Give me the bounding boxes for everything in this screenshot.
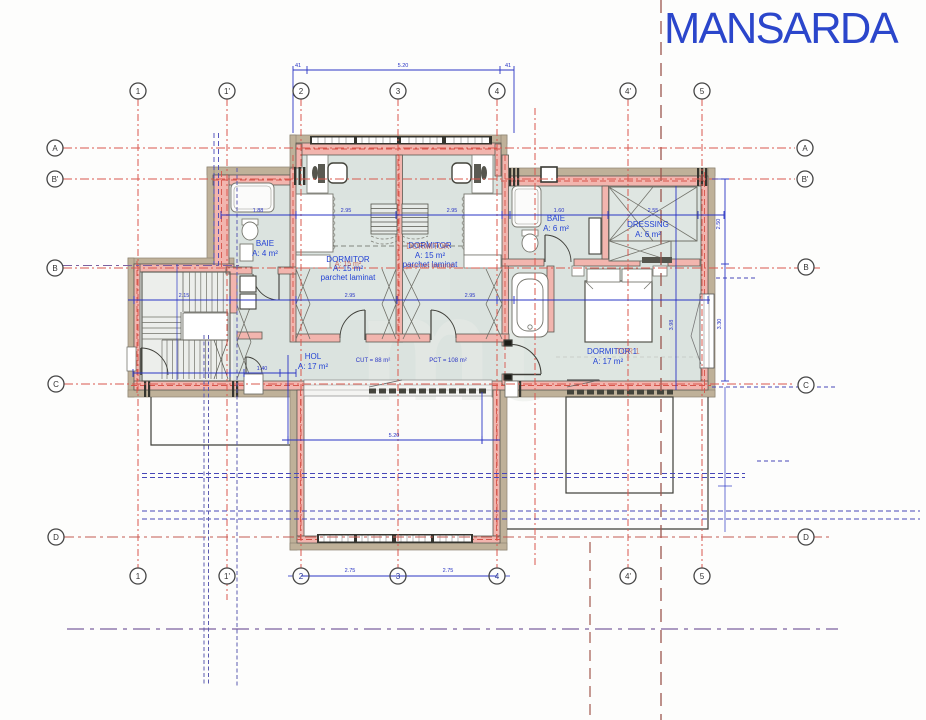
svg-text:2: 2 xyxy=(299,572,304,581)
svg-text:A: 6 m²: A: 6 m² xyxy=(635,230,661,239)
svg-text:2.50: 2.50 xyxy=(716,219,722,230)
svg-text:2.95: 2.95 xyxy=(465,293,476,299)
svg-text:A: 15 m²: A: 15 m² xyxy=(415,251,446,260)
svg-text:5: 5 xyxy=(700,572,705,581)
svg-text:3: 3 xyxy=(396,87,401,96)
svg-text:5: 5 xyxy=(700,87,705,96)
svg-text:41: 41 xyxy=(295,63,301,69)
svg-text:HOL: HOL xyxy=(305,352,322,361)
svg-text:parchet laminat: parchet laminat xyxy=(321,273,376,282)
svg-text:B': B' xyxy=(52,175,59,184)
svg-text:TOR 1: TOR 1 xyxy=(616,347,640,356)
svg-text:C: C xyxy=(803,381,809,390)
svg-text:B': B' xyxy=(802,175,809,184)
svg-text:1: 1 xyxy=(136,572,141,581)
svg-text:2: 2 xyxy=(299,87,304,96)
svg-text:A: 6 m²: A: 6 m² xyxy=(543,224,569,233)
svg-text:5.20: 5.20 xyxy=(398,63,409,69)
svg-text:C: C xyxy=(53,380,59,389)
svg-text:4: 4 xyxy=(495,87,500,96)
svg-text:1': 1' xyxy=(224,87,230,96)
svg-text:3.98: 3.98 xyxy=(669,320,675,331)
svg-text:2.75: 2.75 xyxy=(443,568,454,574)
svg-text:B: B xyxy=(803,263,808,272)
svg-text:1.40: 1.40 xyxy=(257,366,268,372)
svg-text:DORMITOR: DORMITOR xyxy=(406,242,450,251)
svg-text:3: 3 xyxy=(396,572,401,581)
svg-text:BAIE: BAIE xyxy=(256,239,274,248)
svg-text:41: 41 xyxy=(505,63,511,69)
svg-text:A: 17 m²: A: 17 m² xyxy=(298,362,329,371)
svg-text:A: A xyxy=(52,144,58,153)
svg-text:CUT = 88 m²: CUT = 88 m² xyxy=(356,358,390,364)
svg-text:2.55: 2.55 xyxy=(648,208,659,214)
svg-text:A: 17 m²: A: 17 m² xyxy=(593,357,624,366)
svg-text:1': 1' xyxy=(224,572,230,581)
svg-text:D: D xyxy=(803,533,809,542)
svg-text:A: 15 m²: A: 15 m² xyxy=(335,261,362,268)
svg-text:2.95: 2.95 xyxy=(447,208,458,214)
svg-text:D: D xyxy=(53,533,59,542)
svg-text:4: 4 xyxy=(495,572,500,581)
svg-text:parchet laminat: parchet laminat xyxy=(406,263,454,270)
svg-text:4': 4' xyxy=(625,572,631,581)
svg-text:A: A xyxy=(802,144,808,153)
svg-text:2.95: 2.95 xyxy=(341,208,352,214)
svg-text:2.75: 2.75 xyxy=(345,568,356,574)
svg-text:DRESSING: DRESSING xyxy=(627,220,669,229)
svg-text:MANSARDA: MANSARDA xyxy=(664,5,899,53)
svg-text:A: 4 m²: A: 4 m² xyxy=(252,249,278,258)
svg-text:BAIE: BAIE xyxy=(547,214,565,223)
svg-text:2.95: 2.95 xyxy=(345,293,356,299)
svg-text:4': 4' xyxy=(625,87,631,96)
svg-text:2.15: 2.15 xyxy=(179,293,190,299)
svg-text:1.88: 1.88 xyxy=(253,208,264,214)
svg-text:B: B xyxy=(52,264,57,273)
svg-text:3.30: 3.30 xyxy=(717,319,723,330)
svg-text:PCT = 108 m²: PCT = 108 m² xyxy=(429,358,466,364)
svg-text:5.20: 5.20 xyxy=(389,433,400,439)
svg-text:1: 1 xyxy=(136,87,141,96)
